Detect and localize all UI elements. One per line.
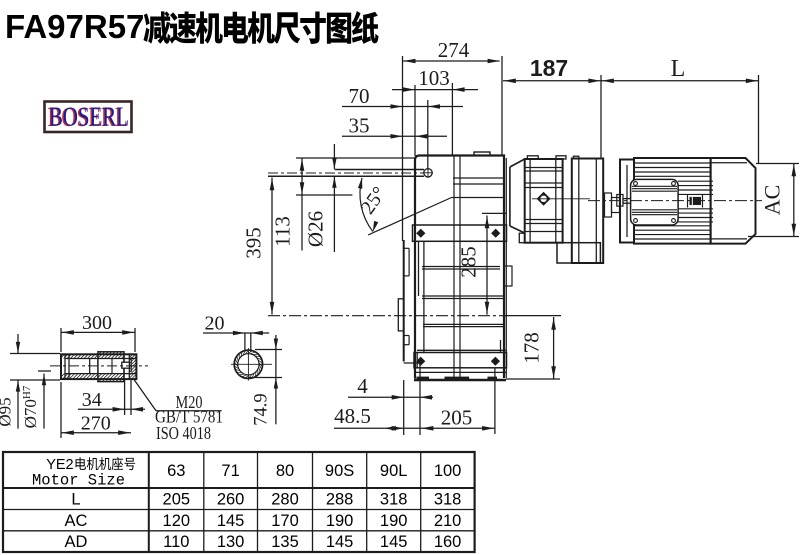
svg-text:145: 145	[217, 512, 245, 530]
svg-text:190: 190	[326, 512, 354, 530]
svg-text:205: 205	[441, 406, 473, 430]
svg-text:80: 80	[276, 462, 294, 480]
svg-text:300: 300	[82, 312, 112, 334]
svg-text:120: 120	[163, 512, 191, 530]
svg-text:AD: AD	[65, 533, 88, 551]
svg-text:135: 135	[271, 533, 299, 551]
svg-text:270: 270	[81, 413, 111, 435]
svg-text:170: 170	[271, 512, 299, 530]
svg-text:110: 110	[163, 533, 189, 551]
svg-text:AC: AC	[760, 185, 785, 216]
svg-text:35: 35	[349, 114, 370, 138]
svg-text:ISO 4018: ISO 4018	[156, 423, 211, 443]
svg-text:BOSERL: BOSERL	[49, 102, 129, 132]
svg-text:74.9: 74.9	[252, 393, 272, 425]
svg-text:145: 145	[380, 533, 408, 551]
svg-text:63: 63	[167, 462, 185, 480]
svg-text:Ø26: Ø26	[304, 211, 328, 247]
svg-text:AC: AC	[65, 512, 88, 530]
svg-text:FA97R57: FA97R57	[5, 8, 144, 45]
svg-text:130: 130	[217, 533, 245, 551]
svg-text:260: 260	[217, 491, 245, 509]
svg-text:70: 70	[349, 84, 370, 108]
svg-text:288: 288	[326, 491, 354, 509]
svg-text:318: 318	[434, 491, 462, 509]
svg-text:4: 4	[357, 374, 368, 398]
svg-text:90S: 90S	[325, 462, 354, 480]
svg-text:Ø95: Ø95	[0, 397, 15, 426]
svg-text:395: 395	[242, 227, 266, 259]
svg-text:178: 178	[520, 332, 544, 364]
svg-text:274: 274	[438, 38, 470, 62]
svg-text:Motor Size: Motor Size	[32, 472, 125, 490]
svg-text:285: 285	[457, 246, 481, 278]
svg-text:L: L	[71, 491, 80, 509]
svg-text:34: 34	[82, 389, 102, 411]
svg-text:210: 210	[434, 512, 462, 530]
svg-text:90L: 90L	[380, 462, 408, 480]
svg-text:113: 113	[271, 216, 295, 247]
svg-text:20: 20	[205, 313, 225, 335]
svg-text:280: 280	[271, 491, 299, 509]
svg-text:71: 71	[221, 462, 239, 480]
svg-text:48.5: 48.5	[334, 404, 371, 428]
svg-text:187: 187	[530, 55, 568, 81]
svg-text:318: 318	[380, 491, 408, 509]
svg-text:100: 100	[434, 462, 462, 480]
svg-text:205: 205	[163, 491, 191, 509]
svg-text:160: 160	[434, 533, 462, 551]
svg-text:190: 190	[380, 512, 408, 530]
svg-text:103: 103	[418, 66, 450, 90]
svg-text:145: 145	[326, 533, 354, 551]
svg-text:L: L	[671, 56, 686, 82]
